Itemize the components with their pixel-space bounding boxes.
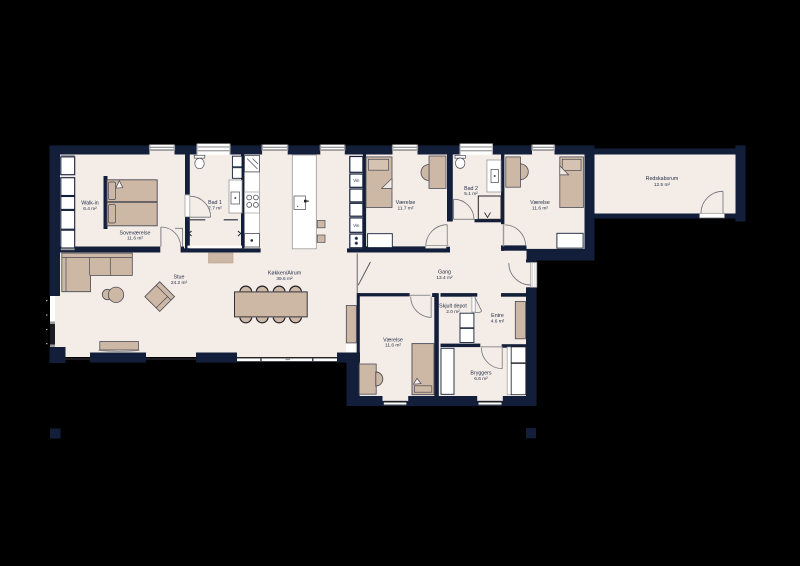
svg-text:6.4 m²: 6.4 m² xyxy=(83,206,97,212)
svg-text:Vin: Vin xyxy=(353,178,360,183)
svg-text:Værelse: Værelse xyxy=(383,337,403,343)
svg-text:Soveværelse: Soveværelse xyxy=(120,230,151,236)
svg-text:11.6 m²: 11.6 m² xyxy=(127,236,143,242)
svg-text:Stue: Stue xyxy=(174,274,185,280)
svg-text:24.2 m²: 24.2 m² xyxy=(171,280,188,286)
svg-text:39.6 m²: 39.6 m² xyxy=(276,276,293,282)
svg-text:4.6 m²: 4.6 m² xyxy=(491,318,505,324)
svg-text:Bryggers: Bryggers xyxy=(470,371,492,377)
svg-text:Køkken/Alrum: Køkken/Alrum xyxy=(268,270,302,276)
svg-text:2.0 m²: 2.0 m² xyxy=(446,309,460,315)
svg-text:Bad 1: Bad 1 xyxy=(208,200,222,206)
svg-text:Redskabsrum: Redskabsrum xyxy=(646,176,679,182)
svg-text:Værelse: Værelse xyxy=(396,200,416,206)
svg-text:11.6 m²: 11.6 m² xyxy=(532,206,548,212)
svg-text:Vin: Vin xyxy=(353,223,360,228)
svg-text:Walk-in: Walk-in xyxy=(81,201,99,207)
svg-text:Skjult depot: Skjult depot xyxy=(439,304,467,310)
svg-text:13.4 m²: 13.4 m² xyxy=(436,275,453,281)
svg-text:Bad 2: Bad 2 xyxy=(464,186,478,192)
svg-text:11.6 m²: 11.6 m² xyxy=(385,343,401,349)
svg-text:Entre: Entre xyxy=(491,313,504,319)
svg-text:7.7 m²: 7.7 m² xyxy=(208,206,222,212)
svg-text:11.7 m²: 11.7 m² xyxy=(398,206,414,212)
svg-text:5.1 m²: 5.1 m² xyxy=(464,191,478,197)
svg-text:Værelse: Værelse xyxy=(530,200,550,206)
svg-text:Gang: Gang xyxy=(438,270,451,276)
svg-text:12.5 m²: 12.5 m² xyxy=(654,182,671,188)
svg-text:6.6 m²: 6.6 m² xyxy=(474,376,488,382)
